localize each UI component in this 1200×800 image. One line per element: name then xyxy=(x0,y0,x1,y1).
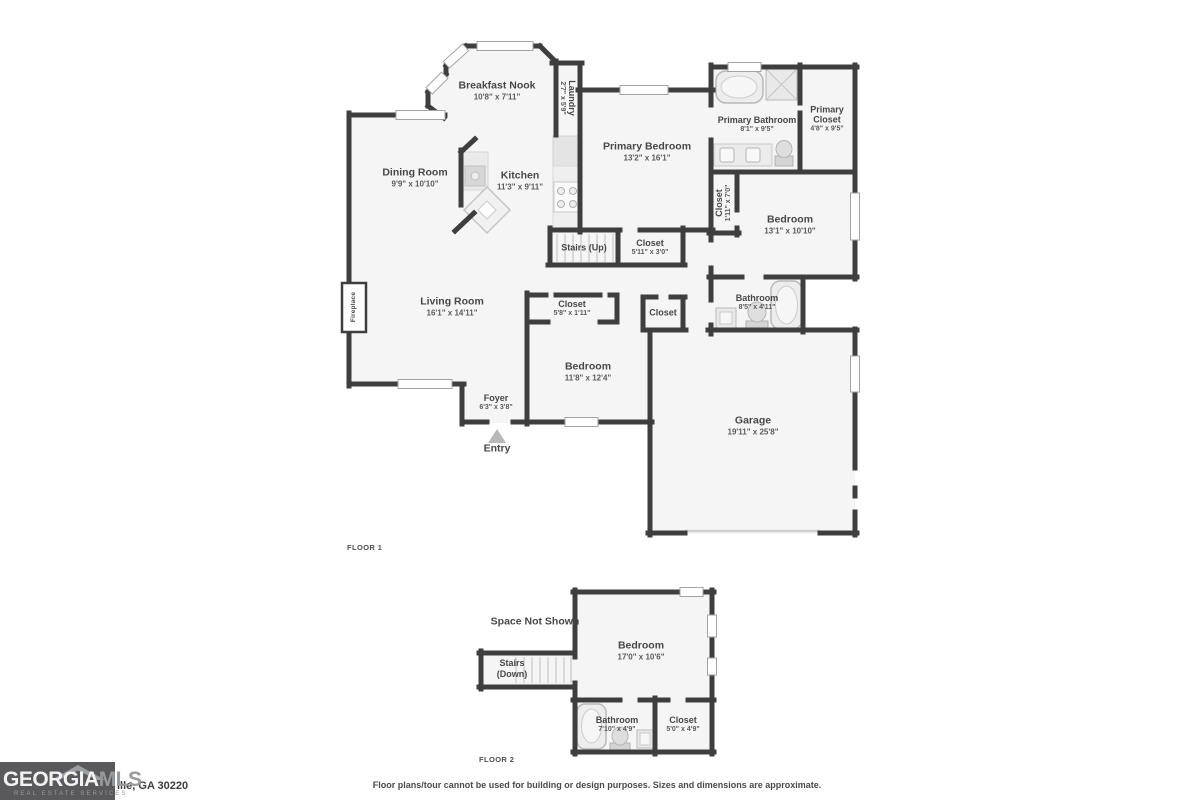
room-label-kitchen: Kitchen 11'3" x 9'11" xyxy=(497,169,543,192)
room-name: Stairs (Down) xyxy=(488,658,536,680)
room-name: Closet xyxy=(666,715,699,726)
room-name: Primary Bedroom xyxy=(603,140,691,153)
room-label-fireplace: Fireplace xyxy=(350,292,358,322)
room-dims: 7'10" x 4'9" xyxy=(596,726,639,735)
room-label-garage: Garage 19'11" x 25'8" xyxy=(728,414,779,437)
room-dims: 1'11" x 7'0" xyxy=(725,185,734,222)
room-dims: 11'8" x 12'4" xyxy=(565,374,612,384)
room-name: Entry xyxy=(484,442,511,455)
room-name: Closet xyxy=(554,299,591,310)
room-label-stairs-up: Stairs (Up) xyxy=(561,242,607,253)
room-name: Bathroom xyxy=(736,293,779,304)
room-label-bedroom-ne: Bedroom 13'1" x 10'10" xyxy=(764,213,815,236)
room-label-foyer: Foyer 6'3" x 3'8" xyxy=(479,393,512,413)
floorplan-page: Breakfast Nook 10'8" x 7'11" Laundry 2'7… xyxy=(0,0,1200,800)
room-name: Primary Bathroom xyxy=(718,115,797,126)
room-dims: 13'2" x 16'1" xyxy=(603,154,691,164)
room-name: Bathroom xyxy=(596,715,639,726)
room-label-living-room: Living Room 16'1" x 14'11" xyxy=(420,295,484,318)
room-label-primary-bathroom: Primary Bathroom 8'1" x 9'5" xyxy=(718,115,797,135)
room-label-closet-small: Closet xyxy=(649,307,677,318)
room-dims: 9'9" x 10'10" xyxy=(382,180,447,190)
room-name: Garage xyxy=(728,414,779,427)
entry-arrow-icon xyxy=(488,429,506,443)
room-name: Primary Closet xyxy=(799,104,855,125)
room-dims: 8'1" x 9'5" xyxy=(718,126,797,135)
room-label-bathroom-f2: Bathroom 7'10" x 4'9" xyxy=(596,715,639,735)
room-dims: 17'0" x 10'6" xyxy=(618,653,665,663)
room-dims: 10'8" x 7'11" xyxy=(458,93,535,103)
room-name: Closet xyxy=(714,185,725,222)
stove-icon xyxy=(554,182,579,212)
room-label-closet-hall: Closet 1'11" x 7'0" xyxy=(714,185,734,222)
room-name: Space Not Shown xyxy=(491,615,580,628)
room-label-bedroom-f2: Bedroom 17'0" x 10'6" xyxy=(618,639,665,662)
logo-georgia: GEORGIA xyxy=(3,768,99,791)
room-dims: 2'7" x 5'9" xyxy=(557,80,566,116)
room-dims: 8'5" x 4'11" xyxy=(736,304,779,313)
room-name: Kitchen xyxy=(497,169,543,182)
logo-mls: MLS xyxy=(99,768,142,791)
room-label-closet-bed3: Closet 5'8" x 1'11" xyxy=(554,299,591,319)
room-label-breakfast-nook: Breakfast Nook 10'8" x 7'11" xyxy=(458,79,535,102)
room-label-laundry: Laundry 2'7" x 5'9" xyxy=(557,80,577,116)
room-label-primary-closet: Primary Closet 4'8" x 9'5" xyxy=(799,104,855,133)
room-label-bedroom-s: Bedroom 11'8" x 12'4" xyxy=(565,360,612,383)
disclaimer-text: Floor plans/tour cannot be used for buil… xyxy=(373,780,822,790)
room-label-space-not-shown: Space Not Shown xyxy=(491,615,580,628)
room-label-dining-room: Dining Room 9'9" x 10'10" xyxy=(382,166,447,189)
room-name: Fireplace xyxy=(350,292,358,322)
room-name: Bedroom xyxy=(618,639,665,652)
room-label-bathroom: Bathroom 8'5" x 4'11" xyxy=(736,293,779,313)
room-name: Closet xyxy=(632,238,669,249)
room-name: Bedroom xyxy=(764,213,815,226)
logo-brand: GEORGIAMLS xyxy=(3,769,142,790)
room-label-primary-bedroom: Primary Bedroom 13'2" x 16'1" xyxy=(603,140,691,163)
room-label-closet-stairs: Closet 5'11" x 3'0" xyxy=(632,238,669,258)
room-dims: 16'1" x 14'11" xyxy=(420,309,484,319)
room-dims: 13'1" x 10'10" xyxy=(764,227,815,237)
room-dims: 5'8" x 1'11" xyxy=(554,310,591,319)
room-dims: 6'3" x 3'8" xyxy=(479,404,512,413)
room-dims: 5'11" x 3'0" xyxy=(632,249,669,258)
room-name: Bedroom xyxy=(565,360,612,373)
room-name: Closet xyxy=(649,307,677,318)
room-dims: 11'3" x 9'11" xyxy=(497,183,543,193)
floor2-tag: FLOOR 2 xyxy=(479,755,514,764)
room-name: Dining Room xyxy=(382,166,447,179)
room-dims: 4'8" x 9'5" xyxy=(799,125,855,134)
room-name: Living Room xyxy=(420,295,484,308)
room-label-stairs-down: Stairs (Down) xyxy=(488,658,536,680)
room-name: Foyer xyxy=(479,393,512,404)
floor1-tag: FLOOR 1 xyxy=(347,543,382,552)
georgia-mls-logo: GEORGIAMLS REAL ESTATE SERVICES xyxy=(0,762,115,800)
room-dims: 19'11" x 25'8" xyxy=(728,428,779,438)
room-label-entry: Entry xyxy=(484,442,511,455)
room-name: Laundry xyxy=(566,80,577,116)
logo-tagline: REAL ESTATE SERVICES xyxy=(14,791,127,797)
room-label-closet-f2: Closet 5'0" x 4'9" xyxy=(666,715,699,735)
room-name: Breakfast Nook xyxy=(458,79,535,92)
room-dims: 5'0" x 4'9" xyxy=(666,726,699,735)
room-name: Stairs (Up) xyxy=(561,242,607,253)
floor-plan-graphic xyxy=(0,0,1200,800)
